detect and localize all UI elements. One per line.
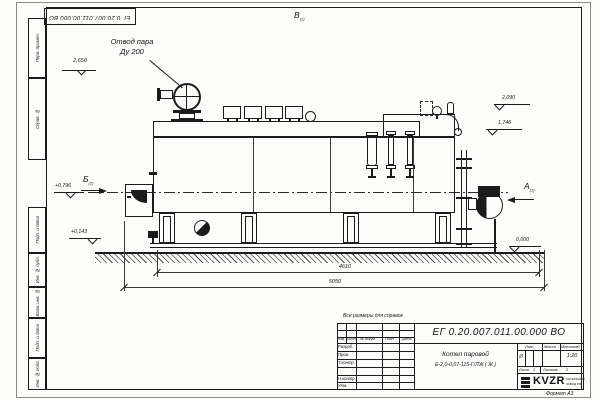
margin-label: Перв. примен. bbox=[35, 33, 40, 62]
tb-sheets-label: Листов bbox=[543, 368, 558, 372]
view-sheet-ref: (2) bbox=[89, 181, 94, 186]
pipe-flange bbox=[456, 228, 472, 230]
tb-scale-header: Масштаб bbox=[561, 345, 580, 349]
format-note: Формат А3 bbox=[546, 392, 573, 397]
dimension-overall-length: 5050 bbox=[317, 280, 353, 286]
margin-cell-podp-data-1: Подп. и дата bbox=[28, 207, 46, 253]
gauge-foot bbox=[368, 176, 376, 178]
margin-label: Инв. № дубл. bbox=[35, 256, 40, 283]
front-drain-fitting bbox=[148, 231, 158, 238]
tb-col-date: Дата bbox=[402, 338, 411, 342]
margin-label: Подп. и дата bbox=[35, 324, 40, 352]
tb-row-nkontr: Н.контр. bbox=[338, 377, 356, 381]
margin-label: Справ. № bbox=[35, 109, 40, 129]
tb-sheet-label: Лист bbox=[519, 368, 529, 372]
tb-row-razrab: Разраб. bbox=[338, 345, 353, 349]
rear-round-fitting bbox=[432, 106, 442, 116]
gauge-foot bbox=[387, 176, 395, 178]
dimension-line bbox=[157, 272, 540, 273]
drain-stem bbox=[152, 238, 154, 243]
gauge-stem bbox=[409, 169, 411, 176]
drawing-sheet: Перв. примен. Справ. № Подп. и дата Инв.… bbox=[0, 0, 600, 400]
gauge-stem bbox=[371, 169, 373, 176]
tb-vline bbox=[533, 350, 534, 366]
dimension-line bbox=[124, 287, 545, 288]
logo-bar bbox=[521, 385, 530, 388]
elevation-front-upper: +0,796 bbox=[55, 184, 71, 189]
logo-bar bbox=[521, 377, 530, 380]
valve-leg bbox=[236, 119, 238, 122]
view-arrow-line bbox=[81, 190, 101, 191]
valve-leg bbox=[298, 119, 300, 122]
manhole bbox=[194, 220, 210, 236]
pipe-flange bbox=[456, 158, 472, 160]
elevation-steam-valve: 2,650 bbox=[63, 59, 97, 65]
foundation-rail bbox=[150, 243, 497, 248]
logo-caption-line2: ЗАВОД РФ bbox=[566, 383, 581, 386]
front-wall-flange bbox=[149, 172, 157, 175]
safety-valve-box bbox=[223, 106, 241, 119]
logo-bar bbox=[521, 381, 530, 384]
safety-valve-box bbox=[285, 106, 303, 119]
elevation-rear-upper: 2,090 bbox=[502, 96, 515, 101]
body-seam bbox=[330, 138, 331, 212]
logo-caption-line1: КОТЕЛЬНЫЙ bbox=[566, 378, 585, 381]
margin-cell-perv-primen: Перв. примен. bbox=[28, 18, 46, 78]
margin-cell-vzam-inv: Взам. инв. № bbox=[28, 287, 46, 318]
tb-row-tkontr: Т.контр. bbox=[338, 361, 355, 365]
tb-vline bbox=[399, 323, 400, 390]
view-sheet-ref: (2) bbox=[530, 188, 535, 193]
tb-product-name-line1: Котел паровой bbox=[414, 350, 517, 360]
tb-mass-header: Масса bbox=[544, 345, 556, 349]
tb-hline bbox=[517, 350, 584, 351]
view-arrow-line bbox=[513, 199, 534, 200]
tb-hline bbox=[517, 373, 584, 374]
deck-valve bbox=[305, 111, 316, 122]
valve-leg bbox=[278, 119, 280, 122]
tb-col-sign: Подп. bbox=[385, 338, 395, 342]
gooseneck-end-flange bbox=[454, 128, 462, 136]
tb-vline bbox=[542, 343, 543, 366]
pump-inlet bbox=[468, 198, 477, 210]
view-sheet-ref: (2) bbox=[300, 17, 305, 22]
support-leg-inner bbox=[245, 216, 253, 243]
body-seam bbox=[413, 138, 414, 212]
elevation-front-lower: +0,143 bbox=[71, 230, 87, 235]
tb-sheets-total: 2 bbox=[566, 368, 568, 372]
elevation-rear-mid: 1,746 bbox=[498, 121, 511, 126]
phantom-outline bbox=[420, 101, 433, 116]
capped-stub-pipe bbox=[447, 102, 454, 114]
top-stamp-box: ЕГ 0.20.007.011.00.000 ВО bbox=[44, 8, 136, 25]
tb-hline bbox=[337, 382, 414, 383]
margin-cell-inv-podl: Инв. № подл. bbox=[28, 358, 46, 390]
ground-hatching bbox=[95, 254, 545, 263]
reference-note: Все размеры для справок bbox=[343, 314, 403, 319]
margin-cell-podp-data-2: Подп. и дата bbox=[28, 318, 46, 358]
support-leg-inner bbox=[439, 216, 447, 243]
valve-leg bbox=[257, 119, 259, 122]
tb-hline bbox=[337, 330, 414, 331]
support-leg-inner bbox=[347, 216, 355, 243]
top-stamp-number: ЕГ 0.20.007.011.00.000 ВО bbox=[49, 14, 130, 20]
tb-doc-number: ЕГ 0.20.007.011.00.000 ВО bbox=[414, 323, 584, 343]
tb-scale-value: 1:20 bbox=[560, 352, 584, 362]
tb-vline bbox=[540, 366, 541, 373]
elevation-ground: 0,000 bbox=[516, 238, 529, 243]
gauge-stem bbox=[390, 169, 392, 176]
margin-cell-inv-dubl: Инв. № дубл. bbox=[28, 253, 46, 287]
margin-label: Подп. и дата bbox=[35, 216, 40, 244]
safety-valve-box bbox=[244, 106, 262, 119]
tb-vline bbox=[356, 323, 357, 390]
tb-row-utv: Утв. bbox=[338, 384, 348, 388]
tb-sheet-number: 1 bbox=[533, 368, 535, 372]
tb-product-name-line2: Е-2,0-0,07-115-Г/ЛЖ ( Ж ) bbox=[414, 361, 517, 370]
logo-text: KVZR bbox=[533, 375, 565, 387]
pipe-flange bbox=[456, 243, 472, 245]
steam-outlet-note-line2: Ду 200 bbox=[105, 48, 159, 56]
fitting-stem bbox=[436, 116, 438, 119]
tb-lit-header: Лит. bbox=[525, 345, 534, 349]
valve-stem-bar bbox=[157, 88, 160, 101]
tb-col-list: Лист bbox=[347, 338, 356, 342]
gauge-glass-body bbox=[388, 135, 394, 165]
valve-leg bbox=[269, 119, 271, 122]
tb-col-doc: № докум. bbox=[360, 338, 376, 342]
view-marker-top: В(2) bbox=[294, 11, 305, 22]
body-seam bbox=[253, 138, 254, 212]
pump-support bbox=[494, 219, 496, 252]
valve-leg bbox=[248, 119, 250, 122]
pump-volute bbox=[476, 192, 503, 219]
gauge-glass-body bbox=[407, 135, 413, 165]
view-marker-left: Б(2) bbox=[83, 175, 93, 186]
tb-vline bbox=[382, 323, 383, 390]
tb-row-prov: Пров. bbox=[338, 353, 349, 357]
pipe-flange bbox=[456, 167, 472, 169]
view-marker-right: А(2) bbox=[524, 182, 535, 193]
support-leg-inner bbox=[163, 216, 171, 243]
tb-col-izm: Изм. bbox=[338, 338, 346, 342]
valve-wheel-spoke-v bbox=[186, 84, 187, 110]
steam-outlet-note-line1: Отвод пара bbox=[97, 38, 167, 46]
dimension-boiler-length: 4610 bbox=[330, 265, 360, 271]
valve-leg bbox=[289, 119, 291, 122]
gauge-foot bbox=[406, 176, 414, 178]
valve-leg bbox=[227, 119, 229, 122]
gauge-column-body bbox=[367, 136, 377, 166]
valve-stem bbox=[160, 90, 173, 99]
tb-vline bbox=[525, 350, 526, 366]
valve-flange-lower bbox=[171, 119, 203, 122]
view-arrow-head-left bbox=[507, 197, 515, 203]
boiler-top-deck bbox=[153, 121, 420, 137]
tb-lit-value: И bbox=[517, 352, 525, 362]
margin-label: Инв. № подл. bbox=[35, 360, 40, 388]
witness-line bbox=[124, 221, 125, 291]
burner-handle bbox=[127, 196, 131, 198]
tb-hline bbox=[337, 367, 414, 368]
safety-valve-box bbox=[265, 106, 283, 119]
margin-label: Взам. инв. № bbox=[35, 289, 40, 316]
margin-cell-sprav: Справ. № bbox=[28, 78, 46, 160]
